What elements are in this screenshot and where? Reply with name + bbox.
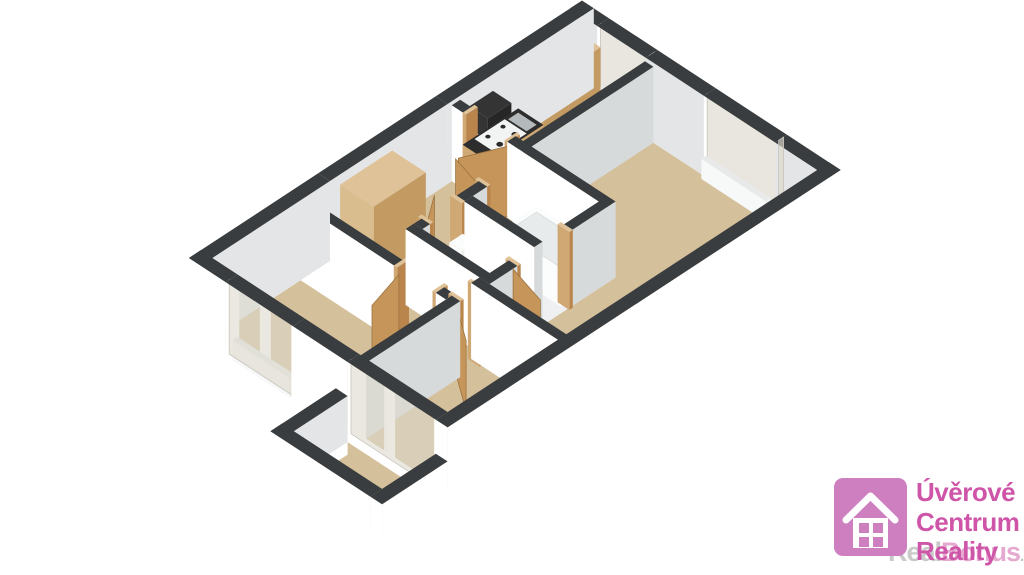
house-icon-svg	[834, 478, 907, 556]
logo-line-1: Úvěrové	[916, 478, 1019, 508]
logo-line-3: Reality	[916, 537, 1019, 567]
door-frame	[558, 224, 570, 310]
burner	[485, 135, 490, 139]
agency-logo: RealBonus.cz Úvěrové Centrum Reality	[834, 477, 1020, 571]
screenshot-root: RealBonus.cz Úvěrové Centrum Reality	[0, 0, 1024, 575]
burner	[500, 125, 505, 129]
logo-line-2: Centrum	[916, 508, 1019, 538]
house-icon	[834, 478, 907, 556]
burner	[496, 142, 503, 147]
door-frame	[569, 230, 572, 310]
logo-text: Úvěrové Centrum Reality	[916, 478, 1019, 567]
balcony-parapet	[370, 497, 382, 575]
watermark-tld: .cz	[1020, 548, 1024, 565]
